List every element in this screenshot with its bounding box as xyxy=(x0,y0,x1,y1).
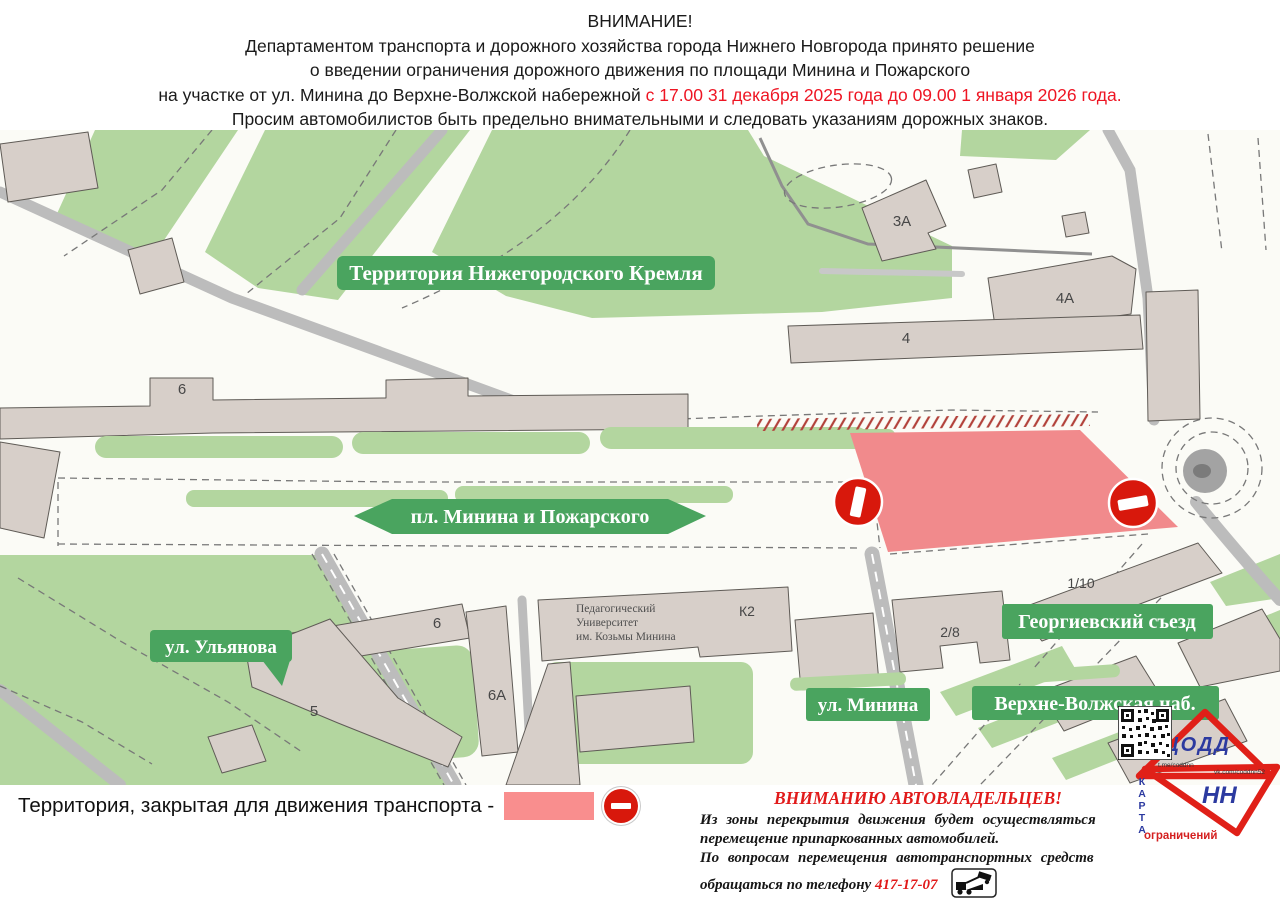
notice-phone: 417-17-07 xyxy=(875,877,938,893)
building-label-5: 5 xyxy=(310,703,318,720)
university-line-2: Университет xyxy=(576,617,638,629)
street-label-georgievsky: Георгиевский съезд xyxy=(1002,604,1213,639)
building-label-6a: 6А xyxy=(488,687,506,704)
kremlin-area-label: Территория Нижегородского Кремля xyxy=(337,256,715,290)
street-label-minina: ул. Минина xyxy=(806,688,930,721)
header-line-4: Просим автомобилистов быть предельно вни… xyxy=(0,107,1280,132)
building-label-4a: 4А xyxy=(1056,290,1074,307)
monument-circle xyxy=(1183,449,1227,493)
street-label-georgievsky-text: Георгиевский съезд xyxy=(1018,611,1195,633)
building-label-1-10: 1/10 xyxy=(1067,575,1094,591)
legend-row: Территория, закрытая для движения трансп… xyxy=(18,789,638,823)
header-line-2: о введении ограничения дорожного движени… xyxy=(0,58,1280,83)
header-title: ВНИМАНИЕ! xyxy=(0,9,1280,34)
building-label-3a: 3А xyxy=(893,213,911,230)
logo-org-text: ЦОДД xyxy=(1164,734,1231,757)
kremlin-area-label-text: Территория Нижегородского Кремля xyxy=(349,261,702,285)
building-label-2-8: 2/8 xyxy=(940,624,960,640)
legend-text: Территория, закрытая для движения трансп… xyxy=(18,794,494,818)
no-entry-sign-right xyxy=(1109,479,1157,527)
qr-code xyxy=(1118,706,1172,760)
square-banner-text: пл. Минина и Пожарского xyxy=(411,506,650,528)
notice-title: ВНИМАНИЮ АВТОВЛАДЕЛЬЦЕВ! xyxy=(700,788,1136,809)
header-line-3-black: на участке от ул. Минина до Верхне-Волжс… xyxy=(158,85,640,105)
legend-no-entry-icon xyxy=(604,789,638,823)
vk-handle: vk.com/coddnn52 xyxy=(1214,769,1265,776)
header-line-3: на участке от ул. Минина до Верхне-Волжс… xyxy=(0,83,1280,108)
header-line-1: Департаментом транспорта и дорожного хоз… xyxy=(0,34,1280,59)
university-line-3: им. Козьмы Минина xyxy=(576,631,676,643)
logo-city-text: НН xyxy=(1202,782,1237,810)
notice-line-1: Из зоны перекрытия движения будет осущес… xyxy=(700,811,1136,830)
header-line-3-red: с 17.00 31 декабря 2025 года до 09.00 1 … xyxy=(641,85,1122,105)
no-entry-sign-left xyxy=(834,478,882,526)
tow-truck-icon xyxy=(951,868,997,898)
building-label-k2: К2 xyxy=(739,603,755,619)
street-label-minina-text: ул. Минина xyxy=(818,695,919,716)
street-label-ulyanova-text: ул. Ульянова xyxy=(165,637,277,658)
notice-line-2: перемещение припаркованных автомобилей. xyxy=(700,830,1136,849)
building-label-4: 4 xyxy=(902,330,910,347)
announcement-header: ВНИМАНИЕ! Департаментом транспорта и дор… xyxy=(0,0,1280,130)
city-map: 3А 4А 4 6 6 6А 5 К2 2/8 1/10 Педагогичес… xyxy=(0,130,1280,785)
university-line-1: Педагогический xyxy=(576,603,655,615)
telegram-handle: t.me/coddnn xyxy=(1158,762,1194,769)
notice-line-3: По вопросам перемещения автотранспортных… xyxy=(700,849,1136,868)
owners-notice: ВНИМАНИЮ АВТОВЛАДЕЛЬЦЕВ! Из зоны перекры… xyxy=(700,788,1136,898)
square-banner-label: пл. Минина и Пожарского xyxy=(354,499,706,534)
qr-caption-karta: КАРТА xyxy=(1136,776,1147,832)
notice-line-4: обращаться по телефону 417-17-07 xyxy=(700,868,1136,898)
legend-closed-zone-swatch xyxy=(504,792,594,820)
codd-logo: ЦОДД НН t.me/coddnn vk.com/coddnn52 КАРТ… xyxy=(1118,706,1280,846)
building-label-6: 6 xyxy=(178,381,186,398)
building-label-block6: 6 xyxy=(433,615,441,632)
notice-line-4-text: обращаться по телефону xyxy=(700,877,875,893)
qr-caption-ogranicheniy: ограничений xyxy=(1144,830,1217,842)
